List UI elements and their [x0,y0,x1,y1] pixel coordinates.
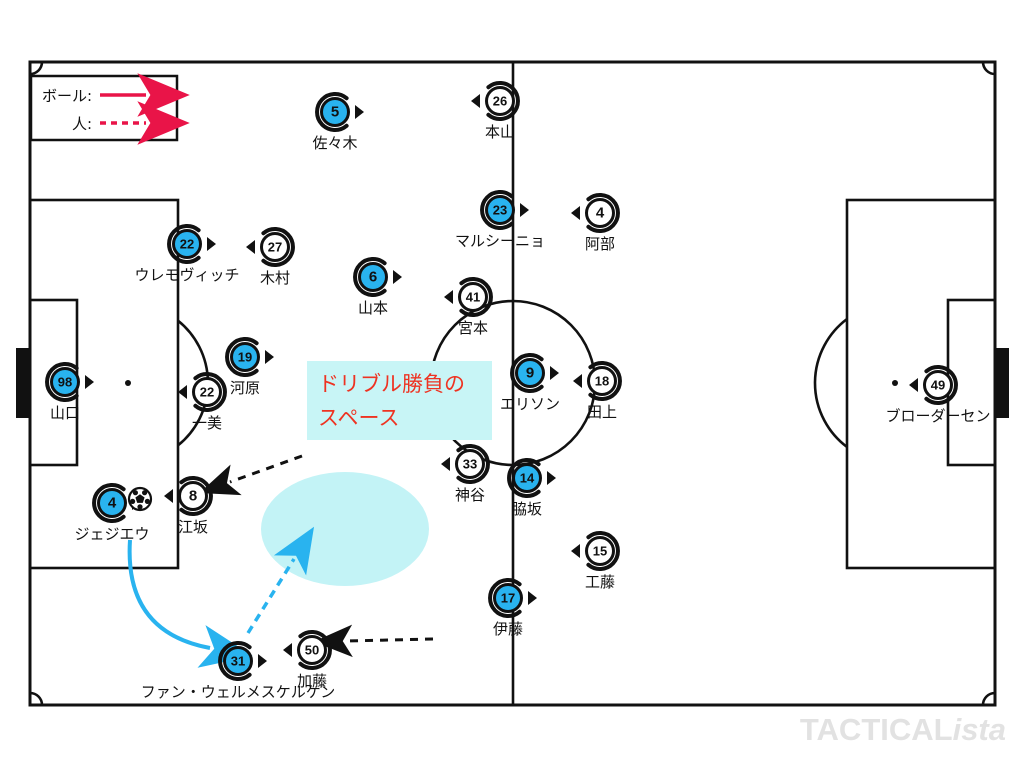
tactics-board: ドリブル勝負の スペース 5佐々木26本山23マルシーニョ4阿部22ウレモヴィッ… [0,0,1024,768]
player-name: 阿部 [585,235,615,253]
annotation-line1: ドリブル勝負の [318,372,465,396]
player-name: 工藤 [585,573,615,591]
pitch-canvas: ドリブル勝負の スペース 5佐々木26本山23マルシーニョ4阿部22ウレモヴィッ… [0,0,1024,768]
player-name: マルシーニョ [455,232,545,250]
player-number: 8 [189,488,197,505]
annotation-line2: スペース [318,406,399,430]
player-number: 22 [180,237,194,252]
player-name: 伊藤 [493,620,523,638]
player-name: 脇坂 [512,500,542,518]
player-number: 98 [58,375,72,390]
player-number: 14 [520,471,535,486]
player-name: 加藤 [297,672,327,690]
player-name: 佐々木 [312,134,357,152]
legend-box[interactable]: ボール: 人: [31,76,177,140]
player-name: 木村 [260,269,290,287]
player-number: 33 [463,457,477,472]
goal-left [16,348,30,418]
watermark-bold-text: TACTICAL [800,712,953,747]
player-name: ウレモヴィッチ [134,266,239,284]
player-name: 山本 [358,299,388,317]
player-name: 宮本 [458,319,488,337]
player-number: 9 [526,365,534,382]
player-name: 河原 [230,379,260,397]
player-number: 5 [331,104,339,121]
player-number: 31 [231,654,245,669]
soccer-ball-icon[interactable] [129,488,151,510]
penalty-spot-right [892,380,898,386]
player-number: 19 [238,350,252,365]
player-number: 15 [593,544,607,559]
legend-background [31,76,177,140]
annotation-note[interactable]: ドリブル勝負の スペース [307,361,492,440]
player-number: 6 [369,269,377,286]
legend-person-label: 人: [72,115,92,133]
player-name: 山口 [50,404,80,422]
player-number: 18 [595,374,609,389]
penalty-spot-left [125,380,131,386]
player-number: 49 [931,378,945,393]
player-name: 神谷 [455,486,485,504]
legend-ball-label: ボール: [42,87,92,105]
player-name: 江坂 [178,518,208,536]
player-name: 田上 [587,403,617,421]
player-name: ジェジエウ [74,525,149,543]
watermark-italic-text: ista [953,712,1006,747]
player-number: 26 [493,94,507,109]
player-number: 17 [501,591,515,606]
player-number: 4 [108,495,117,512]
player-name: 本山 [485,123,515,141]
app-watermark: TACTICALista [800,712,1006,748]
player-number: 22 [200,385,214,400]
player-number: 27 [268,240,282,255]
player-number: 4 [596,205,605,222]
player-name: エリソン [500,395,560,413]
player-number: 41 [466,290,480,305]
goal-right [995,348,1009,418]
player-number: 50 [305,643,319,658]
player-name: ブローダーセン [885,407,990,425]
player-number: 23 [493,203,507,218]
player-name: 一美 [192,414,222,432]
